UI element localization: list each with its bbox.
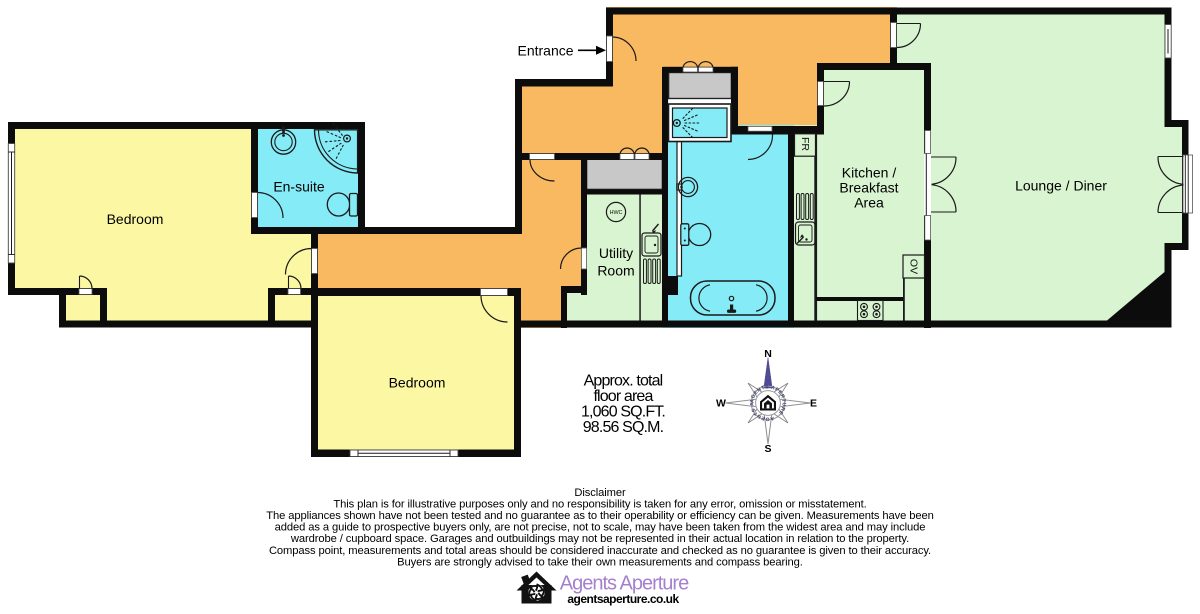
svg-text:S: S xyxy=(764,443,771,455)
svg-text:1,060 SQ.FT.: 1,060 SQ.FT. xyxy=(581,404,665,421)
svg-text:Approx. total: Approx. total xyxy=(584,373,663,390)
svg-text:floor area: floor area xyxy=(593,388,653,405)
svg-text:Buyers are strongly advised to: Buyers are strongly advised to take thei… xyxy=(397,556,803,568)
svg-text:N: N xyxy=(764,348,772,360)
svg-text:Disclaimer: Disclaimer xyxy=(574,487,626,499)
svg-text:98.56 SQ.M.: 98.56 SQ.M. xyxy=(583,419,663,436)
svg-text:W: W xyxy=(716,398,726,410)
svg-text:HWC: HWC xyxy=(610,210,623,216)
svg-text:E: E xyxy=(810,398,817,410)
svg-text:agentsaperture.co.uk: agentsaperture.co.uk xyxy=(567,592,679,606)
svg-text:Utility: Utility xyxy=(599,245,633,261)
svg-text:The appliances shown have not: The appliances shown have not been teste… xyxy=(266,510,934,522)
svg-text:FR: FR xyxy=(799,137,811,151)
svg-text:wardrobe / cupboard space. Gar: wardrobe / cupboard space. Garages and o… xyxy=(290,533,909,545)
svg-text:Entrance: Entrance xyxy=(518,43,574,59)
svg-text:En-suite: En-suite xyxy=(273,179,325,195)
svg-text:Bedroom: Bedroom xyxy=(107,211,164,227)
svg-text:This plan is for illustrative: This plan is for illustrative purposes o… xyxy=(333,498,866,510)
svg-text:Area: Area xyxy=(854,195,884,211)
svg-text:added as a guide to prospectiv: added as a guide to prospective buyers o… xyxy=(275,522,926,534)
svg-text:Breakfast: Breakfast xyxy=(839,180,898,196)
svg-text:Lounge / Diner: Lounge / Diner xyxy=(1015,178,1107,194)
svg-text:Kitchen /: Kitchen / xyxy=(842,165,897,181)
svg-text:Compass point, measurements an: Compass point, measurements and total ar… xyxy=(269,545,931,557)
svg-text:Room: Room xyxy=(597,263,634,279)
svg-text:Bedroom: Bedroom xyxy=(389,375,446,391)
svg-text:OV: OV xyxy=(908,259,920,274)
